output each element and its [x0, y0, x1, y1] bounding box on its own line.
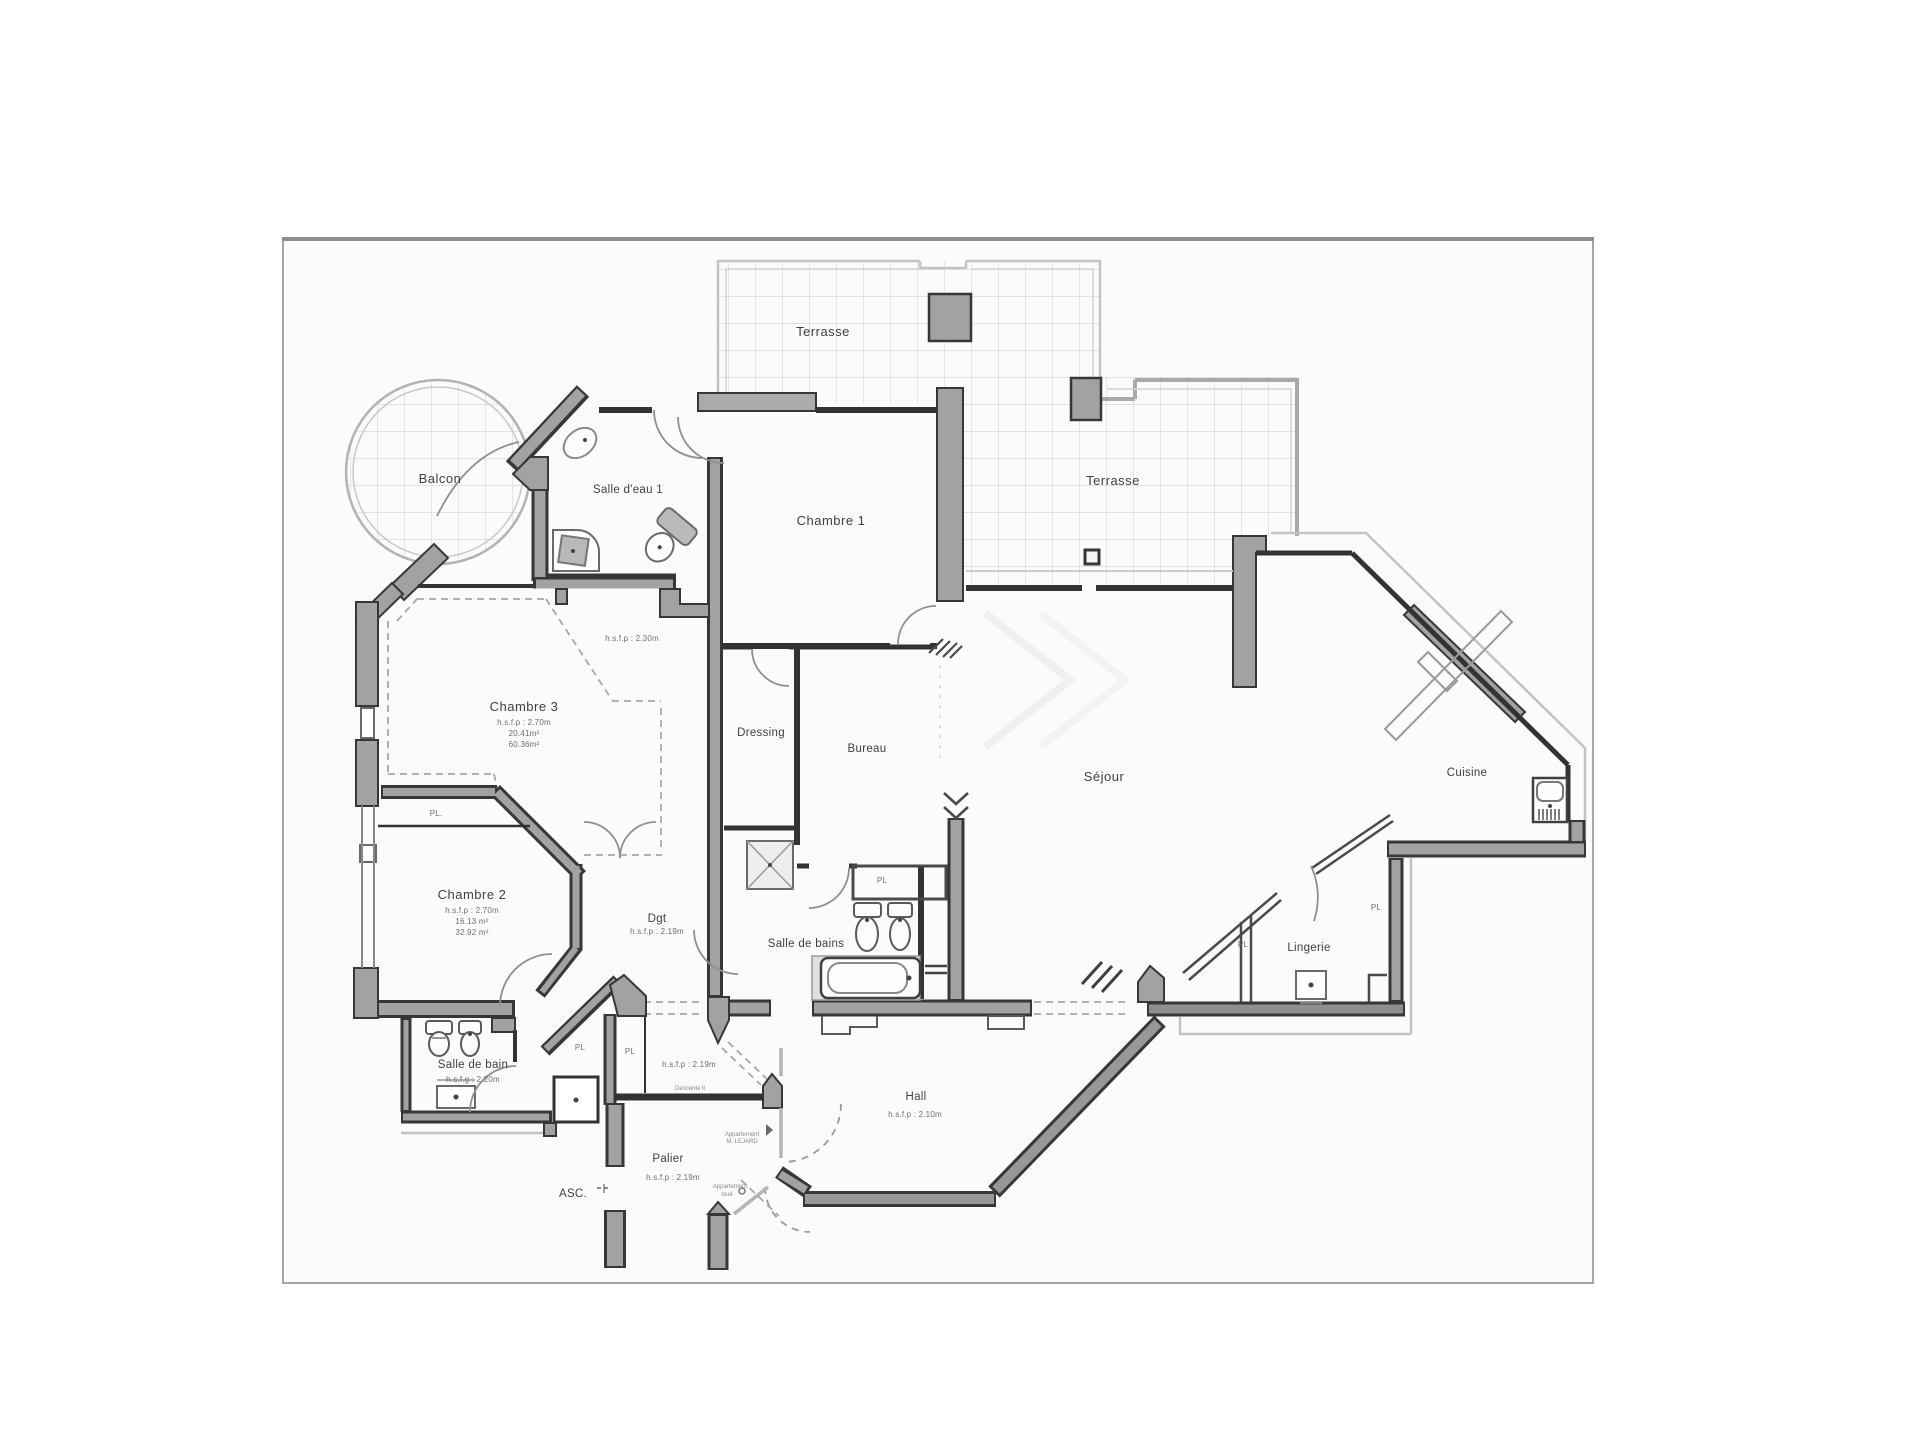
svg-text:PL: PL	[625, 1047, 636, 1056]
svg-text:PL: PL	[1238, 940, 1249, 949]
svg-text:PL: PL	[1371, 903, 1382, 912]
svg-text:Dressing: Dressing	[737, 727, 785, 739]
svg-text:Salle de bain: Salle de bain	[438, 1059, 508, 1071]
svg-text:Chambre 2: Chambre 2	[438, 887, 507, 902]
svg-text:PL: PL	[877, 876, 888, 885]
svg-text:Terrasse: Terrasse	[796, 324, 850, 339]
svg-text:Chambre 1: Chambre 1	[797, 513, 866, 528]
svg-text:loué: loué	[721, 1192, 733, 1198]
svg-text:ASC.: ASC.	[559, 1188, 587, 1200]
svg-text:PL.: PL.	[430, 809, 443, 818]
svg-text:Salle d'eau 1: Salle d'eau 1	[593, 484, 663, 496]
svg-text:60.36m²: 60.36m²	[509, 740, 540, 749]
svg-text:Balcon: Balcon	[419, 471, 462, 486]
svg-text:M. LEJARD: M. LEJARD	[726, 1139, 758, 1145]
svg-text:h.s.f.p : 2.19m: h.s.f.p : 2.19m	[646, 1173, 700, 1182]
svg-text:Palier: Palier	[652, 1153, 683, 1165]
svg-text:h.s.f.p : 2.30m: h.s.f.p : 2.30m	[605, 634, 659, 643]
svg-text:Salle de bains: Salle de bains	[768, 938, 844, 950]
svg-text:h.s.f.p : 2.19m: h.s.f.p : 2.19m	[630, 927, 684, 936]
svg-text:Séjour: Séjour	[1084, 769, 1125, 784]
svg-text:h.s.f.p : 2.70m: h.s.f.p : 2.70m	[497, 718, 551, 727]
svg-text:Bureau: Bureau	[848, 743, 887, 755]
svg-text:h.s.f.p : 2.70m: h.s.f.p : 2.70m	[445, 906, 499, 915]
svg-text:Lingerie: Lingerie	[1287, 942, 1330, 954]
svg-text:h.s.f.g : 2.20m: h.s.f.g : 2.20m	[446, 1075, 500, 1084]
svg-text:h.s.f.p : 2.19m: h.s.f.p : 2.19m	[662, 1060, 716, 1069]
svg-text:Hall: Hall	[905, 1091, 926, 1103]
svg-text:Cuisine: Cuisine	[1447, 767, 1487, 779]
svg-text:Appartement: Appartement	[725, 1132, 760, 1138]
svg-text:16.13 m²: 16.13 m²	[455, 917, 488, 926]
svg-text:20.41m²: 20.41m²	[509, 729, 540, 738]
svg-text:32.92 m²: 32.92 m²	[455, 928, 488, 937]
svg-text:Dgt: Dgt	[648, 913, 667, 925]
svg-text:Appartement: Appartement	[713, 1184, 748, 1190]
svg-text:h.s.f.p : 2.10m: h.s.f.p : 2.10m	[888, 1110, 942, 1119]
svg-text:Chambre 3: Chambre 3	[490, 699, 559, 714]
svg-text:Terrasse: Terrasse	[1086, 473, 1140, 488]
svg-text:PL: PL	[575, 1043, 586, 1052]
svg-text:Descente lt: Descente lt	[675, 1086, 705, 1092]
